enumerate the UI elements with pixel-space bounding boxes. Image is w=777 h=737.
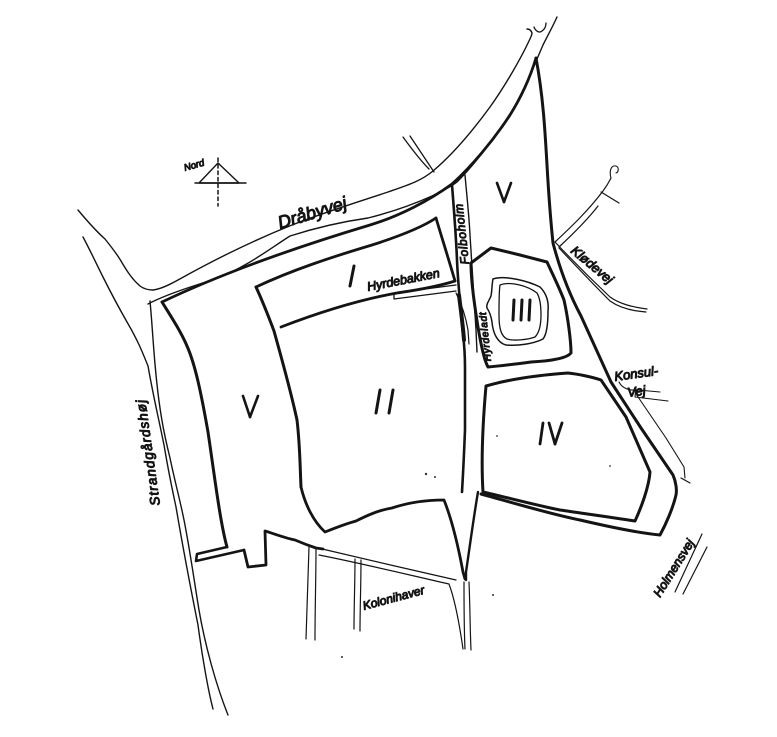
svg-text:Konsul-: Konsul-: [613, 363, 659, 384]
svg-text:Strandgårdshøj: Strandgårdshøj: [133, 398, 163, 507]
svg-text:Nord: Nord: [183, 157, 207, 173]
svg-text:Kolonihaver: Kolonihaver: [361, 583, 427, 613]
svg-text:Dråbyvej: Dråbyvej: [275, 193, 350, 233]
svg-text:Holmensvej: Holmensvej: [651, 536, 698, 600]
svg-text:Hyrdebakken: Hyrdebakken: [366, 266, 441, 294]
